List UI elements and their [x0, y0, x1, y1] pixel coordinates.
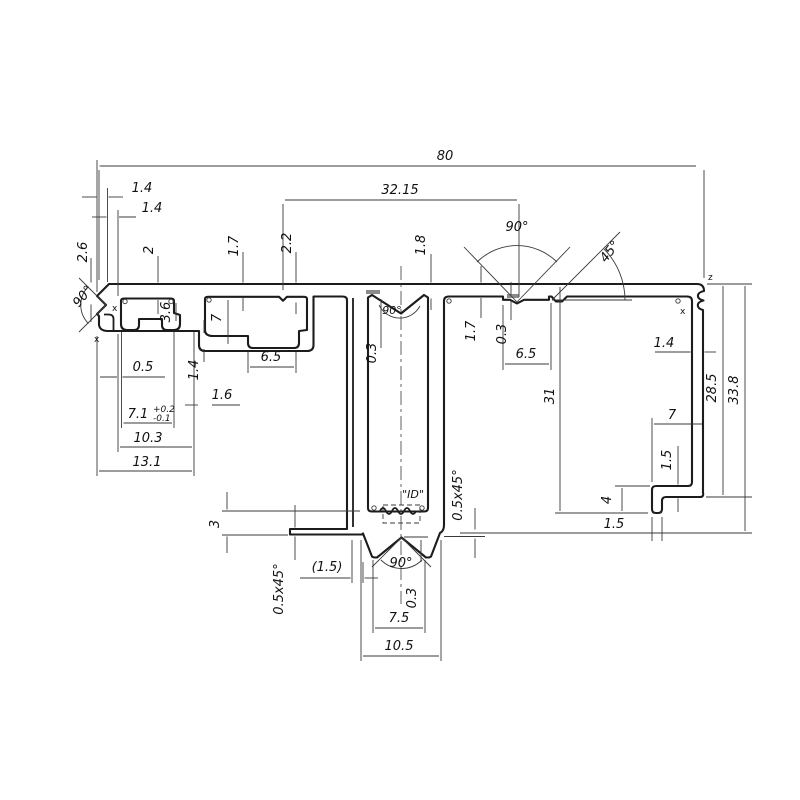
- dim-0-3-slot: 0.3: [365, 343, 380, 364]
- dim-6-5-right: 6.5: [516, 347, 537, 362]
- angle-90-slot: 90°: [382, 304, 402, 317]
- id-marking-area: [380, 505, 420, 523]
- dim-1-4-c: 1.4: [187, 360, 202, 381]
- dim-7-1-tol-minus: -0.1: [153, 414, 171, 424]
- dim-33-8: 33.8: [727, 376, 742, 405]
- dim-1-7-a: 1.7: [227, 235, 242, 256]
- dim-31: 31: [543, 388, 558, 405]
- dim-0-5: 0.5: [133, 360, 154, 375]
- dimension-texts: 80 32.15 1.4 1.4 2.6 90° 2 1.7 2.2 1.8 9…: [70, 149, 742, 654]
- dim-3: 3: [208, 520, 223, 528]
- dim-1-5-paren: (1.5): [312, 560, 343, 575]
- dim-4: 4: [600, 496, 615, 504]
- angle-90-top: 90°: [505, 220, 528, 235]
- angle-45: 45°: [597, 238, 623, 265]
- dim-10-5: 10.5: [385, 639, 414, 654]
- dim-1-8: 1.8: [414, 235, 429, 256]
- profile-drawing: 80 32.15 1.4 1.4 2.6 90° 2 1.7 2.2 1.8 9…: [0, 0, 800, 800]
- dim-1-5-a: 1.5: [660, 450, 675, 471]
- dim-7-1: 7.1: [128, 407, 149, 422]
- id-label: "ID": [402, 488, 424, 501]
- dim-1-7-b: 1.7: [464, 320, 479, 341]
- x-mark-2: x: [94, 335, 100, 345]
- point-x-label: x: [680, 307, 686, 317]
- cad-drawing-page: 80 32.15 1.4 1.4 2.6 90° 2 1.7 2.2 1.8 9…: [0, 0, 800, 800]
- dim-10-3: 10.3: [134, 431, 163, 446]
- dim-7-5: 7.5: [389, 611, 410, 626]
- dim-32-15: 32.15: [381, 183, 418, 198]
- angle-90-left: 90°: [70, 283, 96, 310]
- point-z-label: z: [708, 273, 713, 283]
- gasket-mark-left: [366, 290, 380, 294]
- dim-13-1: 13.1: [133, 455, 162, 470]
- knurl-line: [380, 508, 416, 514]
- dim-80: 80: [437, 149, 454, 164]
- dim-6-5-left: 6.5: [261, 350, 282, 365]
- chamfer-0-5x45-right: 0.5x45°: [451, 469, 466, 520]
- dim-1-4-b: 1.4: [142, 201, 163, 216]
- dim-1-6: 1.6: [212, 388, 233, 403]
- chamfer-0-5x45-left: 0.5x45°: [272, 563, 287, 614]
- dim-3-6: 3.6: [159, 302, 174, 323]
- dim-7-a: 7: [210, 313, 225, 322]
- dim-0-3-b: 0.3: [495, 324, 510, 345]
- angle-90-bottom: 90°: [389, 556, 412, 571]
- dim-1-4-d: 1.4: [654, 336, 675, 351]
- dim-2-2: 2.2: [280, 233, 295, 254]
- dim-2-6: 2.6: [76, 242, 91, 263]
- dim-2: 2: [142, 246, 157, 254]
- dimension-lines: [79, 166, 745, 656]
- corner-markers: [123, 298, 680, 510]
- dim-1-5-b: 1.5: [604, 517, 625, 532]
- dim-7-b: 7: [668, 408, 677, 423]
- dim-0-3-c: 0.3: [405, 588, 420, 609]
- dim-1-4-a: 1.4: [132, 181, 153, 196]
- x-mark-1: x: [112, 304, 118, 314]
- dim-28-5: 28.5: [705, 374, 720, 403]
